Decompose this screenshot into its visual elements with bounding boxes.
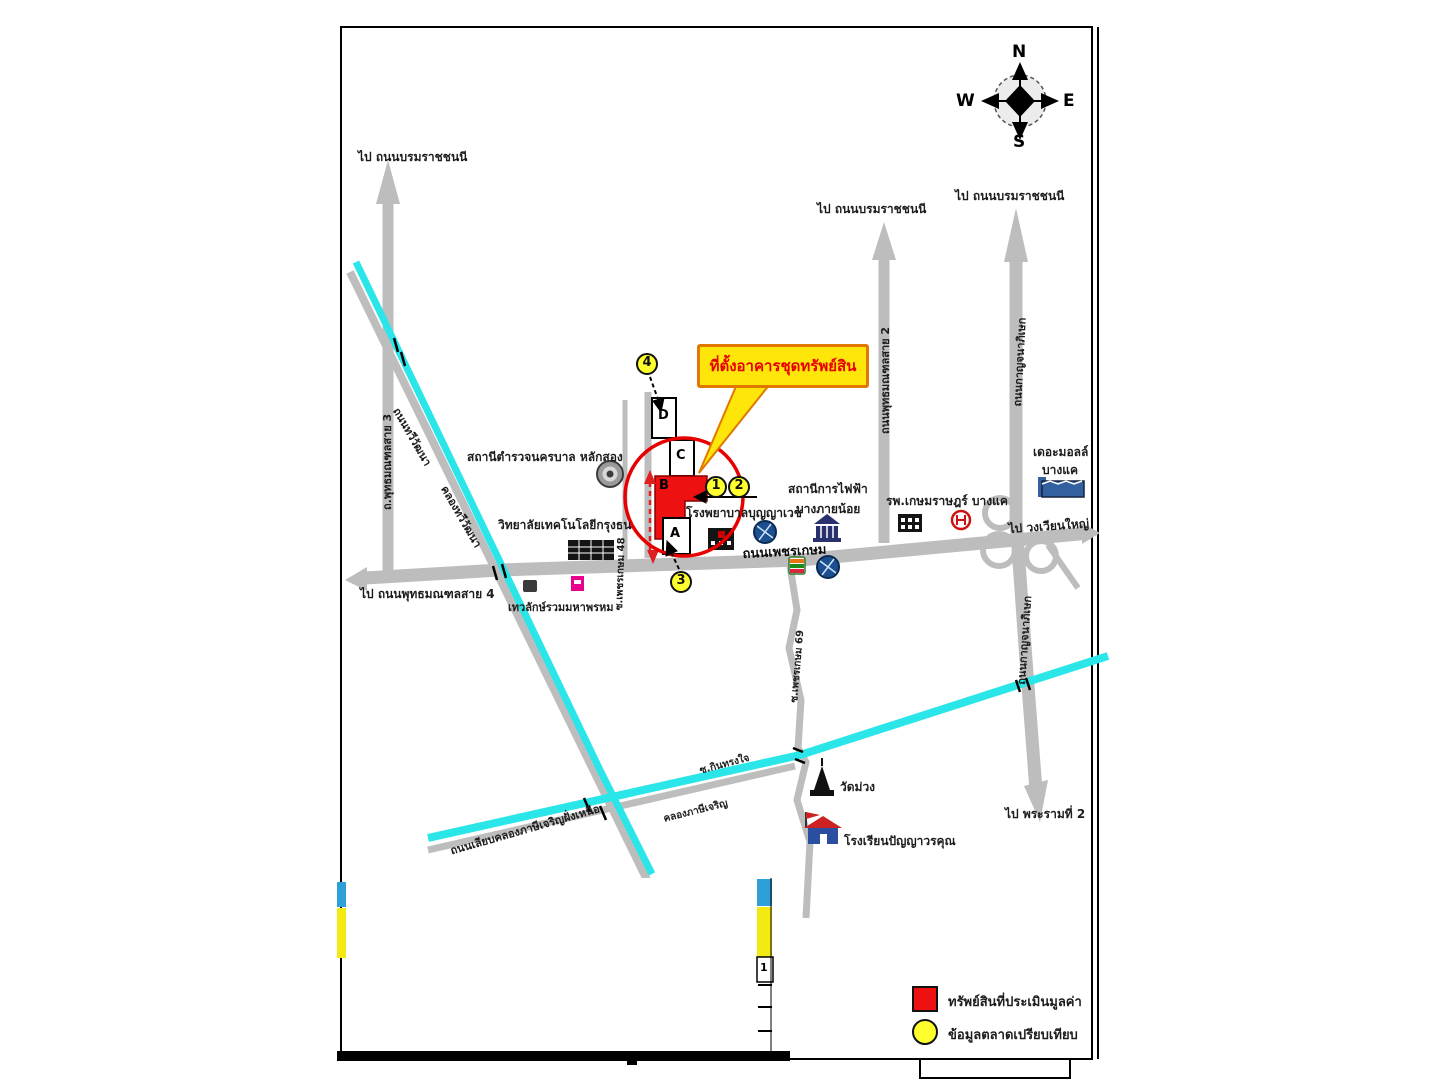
marker-4: 4	[636, 353, 658, 375]
place-kasemrad: รพ.เกษมราษฎร์ บางแค	[886, 492, 1008, 511]
basemap-svg	[0, 0, 1440, 1080]
property-callout: ที่ตั้งอาคารชุดทรัพย์สิน	[697, 344, 869, 388]
compass-w-label: W	[956, 91, 975, 111]
place-hospital: โรงพยาบาลบุญญาเวช	[686, 504, 802, 523]
building-c-label: C	[676, 448, 686, 463]
marker-2: 2	[728, 476, 750, 498]
building-b-label: B	[659, 478, 669, 493]
honda-logo-icon	[952, 511, 970, 529]
place-mall-line2: บางแค	[1042, 461, 1078, 480]
place-power-line2: บางภายน้อย	[796, 500, 860, 519]
place-mall-line1: เดอะมอลล์	[1033, 443, 1088, 462]
legend-property-swatch	[912, 986, 938, 1012]
place-college: วิทยาลัยเทคโนโลยีกรุงธน	[498, 516, 631, 535]
kasemrad-building-icon	[898, 514, 922, 532]
compass-s-label: S	[1013, 132, 1025, 152]
dir-south: ไป พระรามที่ 2	[1005, 805, 1085, 824]
compass-n-label: N	[1012, 42, 1026, 62]
place-shrine: เทวลักษ์รวมมหาพรหม	[508, 598, 614, 616]
place-wat: วัดม่วง	[840, 778, 875, 797]
compass-e-label: E	[1063, 91, 1075, 111]
marker-1: 1	[705, 476, 727, 498]
college-building-icon	[568, 540, 614, 560]
dir-kanchana-top: ไป ถนนบรมราชชนนี	[955, 187, 1064, 206]
road-label-phetkasem: ถนนเพชรเกษม	[742, 539, 827, 564]
next-page-box	[920, 1059, 1070, 1078]
dir-west: ไป ถนนพุทธมณฑลสาย 4	[360, 585, 495, 604]
dir-sai2-top: ไป ถนนบรมราชชนนี	[817, 200, 926, 219]
property-callout-text: ที่ตั้งอาคารชุดทรัพย์สิน	[710, 354, 857, 378]
building-d-label: D	[658, 408, 669, 423]
place-school: โรงเรียนปัญญาวรคุณ	[844, 832, 956, 851]
shrine-icon	[523, 580, 537, 592]
road-label-sai3: ถ.พุทธมณฑลสาย 3	[378, 414, 396, 510]
marker-3: 3	[670, 571, 692, 593]
building-a-label: A	[670, 526, 680, 541]
globe-icon-1	[754, 521, 776, 543]
pink-shop-icon	[571, 576, 584, 591]
place-police: สถานีตำรวจนครบาล หลักสอง	[467, 448, 623, 467]
road-label-sai2: ถนนพุทธมณฑลสาย 2	[876, 327, 894, 434]
legend-market-swatch	[912, 1019, 938, 1045]
legend-property-label: ทรัพย์สินที่ประเมินมูลค่า	[948, 991, 1082, 1012]
road-label-soi48: ซ.เพชรเกษม 48	[612, 537, 630, 610]
dir-top-left: ไป ถนนบรมราชชนนี	[358, 148, 467, 167]
map-page: ไป ถนนบรมราชชนนี ไป ถนนบรมราชชนนี ไป ถนน…	[0, 0, 1440, 1080]
place-power-line1: สถานีการไฟฟ้า	[788, 480, 868, 499]
legend-market-label: ข้อมูลตลาดเปรียบเทียบ	[948, 1024, 1078, 1045]
overlay-mark: 1	[760, 961, 768, 974]
